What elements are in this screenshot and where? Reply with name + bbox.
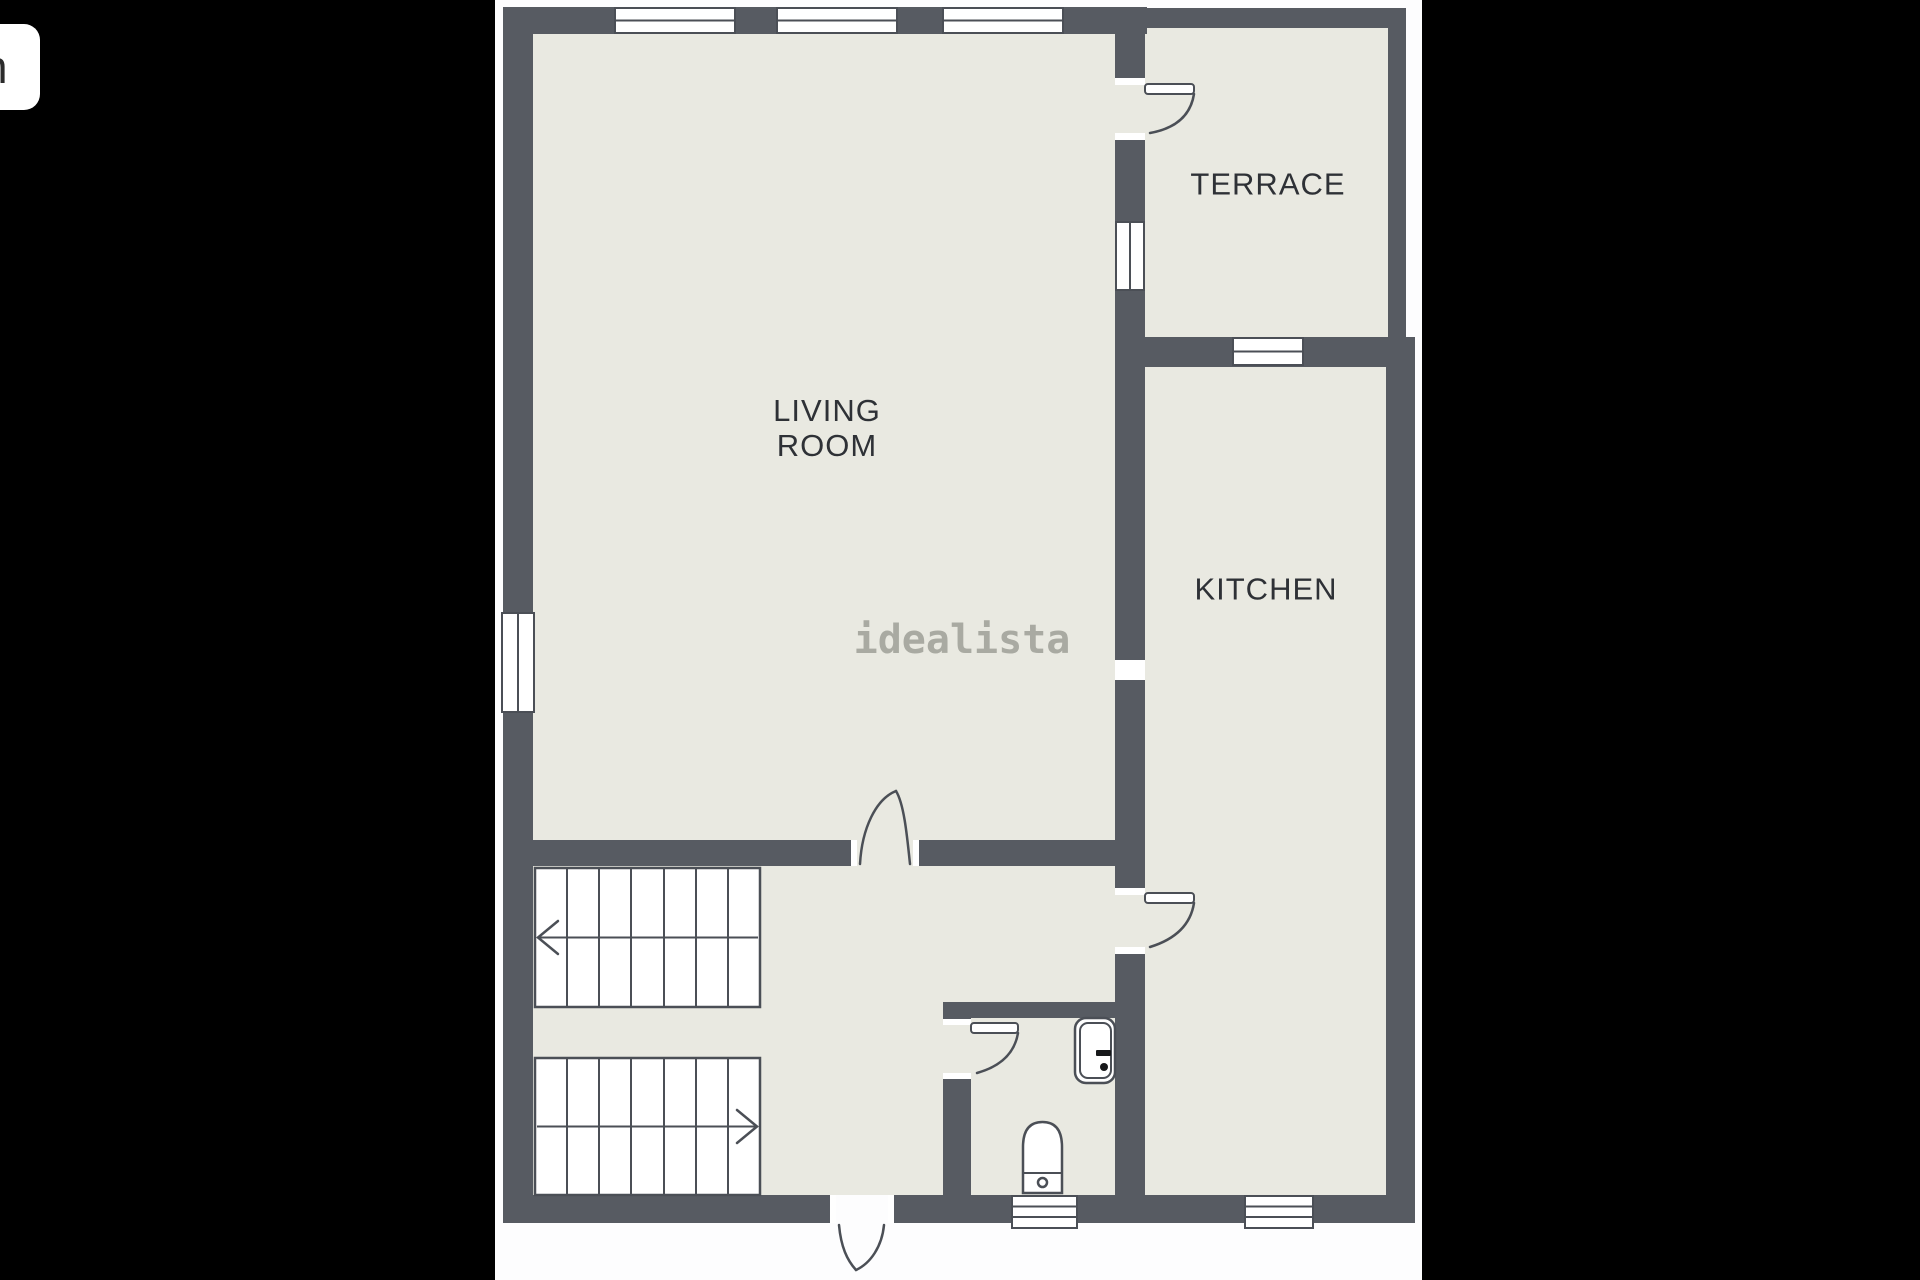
terrace-label: TERRACE: [1190, 167, 1345, 202]
door-jamb: [1115, 78, 1145, 85]
door-jamb: [851, 840, 857, 866]
staircase-upper-flight: [535, 868, 760, 1007]
opening-entry-door: [836, 1195, 888, 1223]
door-jamb: [888, 1195, 894, 1223]
wall-terrace-top: [1147, 8, 1406, 28]
wall-divider: [1115, 34, 1145, 1195]
wall-break: [1115, 660, 1145, 680]
opening-terrace-door: [1115, 85, 1145, 133]
door-jamb: [943, 1019, 971, 1025]
opening-living-door: [857, 840, 913, 866]
opening-bathroom-door: [943, 1025, 971, 1073]
wall-right: [1386, 337, 1415, 1223]
door-jamb: [830, 1195, 836, 1223]
image-viewer: LIVING ROOM TERRACE KITCHEN idealista n: [0, 0, 1920, 1280]
staircase-lower-flight: [535, 1058, 760, 1195]
door-jamb: [1115, 888, 1145, 895]
toilet-icon: [1023, 1122, 1062, 1193]
window-icon: [1116, 222, 1144, 290]
living-room-label-line1: LIVING: [773, 393, 881, 428]
door-jamb: [1115, 947, 1145, 954]
window-icon: [1012, 1196, 1077, 1228]
room-kitchen: [1145, 367, 1386, 1195]
window-icon: [502, 613, 534, 712]
sink-icon: [1075, 1018, 1115, 1083]
wall-bathroom-top: [943, 1002, 1115, 1018]
window-icon: [777, 8, 897, 33]
window-icon: [615, 8, 735, 33]
door-jamb: [943, 1073, 971, 1079]
viewer-corner-badge-button[interactable]: n: [0, 24, 40, 110]
wall-hall-top: [533, 840, 1115, 866]
door-jamb: [1115, 133, 1145, 140]
window-icon: [1245, 1196, 1313, 1228]
entrance-door-icon: [839, 1225, 884, 1270]
living-room-label-line2: ROOM: [773, 428, 881, 463]
window-icon: [943, 8, 1063, 33]
kitchen-label: KITCHEN: [1194, 572, 1337, 607]
window-icon: [1233, 338, 1303, 365]
door-jamb: [913, 840, 919, 866]
wall-terrace-right: [1388, 8, 1406, 337]
opening-kitchen-door: [1115, 895, 1145, 947]
living-room-label: LIVING ROOM: [773, 393, 881, 463]
viewer-corner-badge-glyph: n: [0, 40, 8, 94]
idealista-watermark: idealista: [854, 617, 1071, 663]
